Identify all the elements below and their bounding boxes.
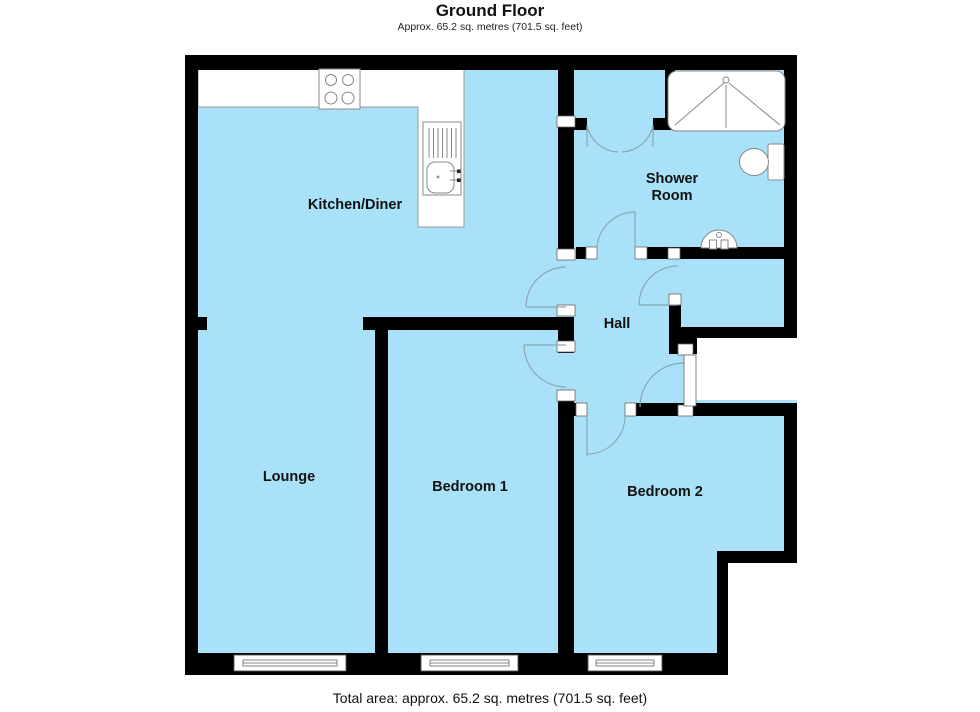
room-label-bedroom1: Bedroom 1 (432, 479, 508, 495)
door-jamb (557, 390, 575, 401)
room-label-bedroom2: Bedroom 2 (627, 484, 703, 500)
door-jamb (586, 247, 597, 259)
wall-lounge-bedroom1 (375, 317, 388, 653)
room-label-kitchen-diner: Kitchen/Diner (308, 197, 403, 213)
wall-step-vertical (717, 551, 728, 659)
wall-step-horizontal (717, 551, 797, 563)
wall-kitchen-hall (558, 68, 574, 249)
total-area-text: Total area: approx. 65.2 sq. metres (701… (0, 690, 980, 706)
wall-top (185, 55, 797, 70)
room-label-lounge: Lounge (263, 469, 315, 485)
floorplan-drawing: Kitchen/Diner Lounge Bedroom 1 Bedroom 2… (0, 0, 980, 712)
wall-right-upper (784, 55, 797, 338)
door-jamb (669, 294, 681, 305)
door-jamb (668, 248, 680, 259)
wall-cupboard-south-right (653, 118, 665, 130)
room-label-hall: Hall (604, 316, 631, 332)
sink-bowl (427, 162, 454, 193)
wall-openplan-stub (198, 317, 207, 330)
sink-tap-dot (457, 179, 461, 183)
entrance-door-leaf (684, 355, 696, 406)
entry-recess (690, 338, 797, 400)
door-jamb (678, 405, 693, 416)
bedroom1-door-opening (558, 353, 574, 390)
kitchen-sink-icon (423, 122, 461, 195)
door-jamb (576, 403, 587, 416)
hob-body (319, 69, 360, 109)
hob-icon (319, 69, 360, 109)
bedroom2-door-opening (587, 403, 625, 416)
sink-tap-dot (457, 170, 461, 174)
wall-right-mid (784, 412, 797, 557)
toilet-bowl (740, 149, 769, 176)
door-jamb (557, 249, 575, 260)
wall-lounge-top (363, 317, 558, 330)
wall-left (185, 55, 198, 675)
sink-drainer-lines (429, 128, 456, 158)
sink-plughole (437, 176, 440, 179)
shower-tray-icon (668, 71, 785, 131)
floorplan-page: Ground Floor Approx. 65.2 sq. metres (70… (0, 0, 980, 712)
wall-shower-south-stub (576, 247, 586, 259)
basin-tap (721, 240, 728, 249)
room-label-shower-line1: Shower (646, 171, 699, 187)
toilet-cistern (768, 144, 784, 180)
door-jamb (625, 403, 636, 416)
bottom-right-notch (728, 563, 797, 675)
door-jamb (635, 247, 647, 259)
basin-tap (710, 240, 717, 249)
door-jamb (557, 116, 575, 127)
door-jamb (678, 344, 693, 355)
wall-hall-step-thin (669, 305, 681, 332)
room-label-shower-line2: Room (651, 188, 692, 204)
windows (234, 655, 662, 671)
door-jamb (557, 341, 575, 352)
